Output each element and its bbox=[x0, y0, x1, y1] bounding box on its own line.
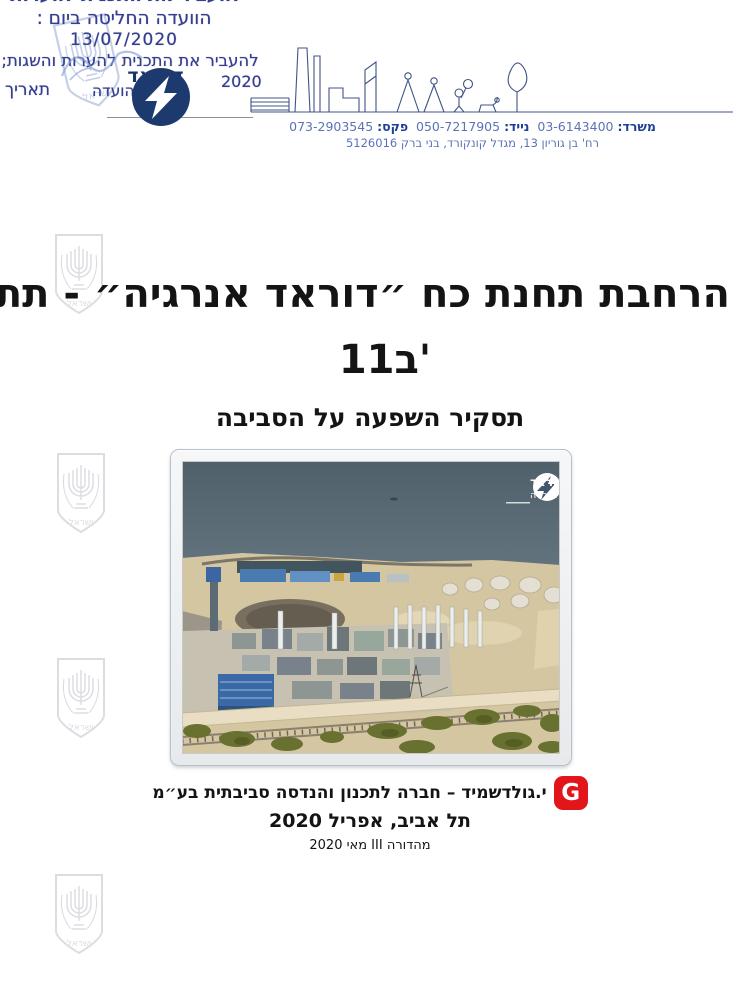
israel-emblem-watermark bbox=[47, 868, 111, 968]
israel-emblem-watermark bbox=[49, 652, 113, 752]
fax-number: 073-2903545 bbox=[289, 119, 373, 134]
israel-emblem-watermark bbox=[49, 447, 113, 547]
office-number: 03-6143400 bbox=[537, 119, 613, 134]
fax-label: פקס: bbox=[377, 119, 408, 134]
main-title-line1: הרחבת תחנת כח ״דוראד אנרגיה״ - תת״ל bbox=[40, 271, 730, 317]
company-name: י.גולדשמיד – חברה לתכנון והנדסה סביבתית … bbox=[152, 783, 546, 803]
stamp-date-label: תאריך bbox=[5, 80, 50, 100]
mobile-label: נייד: bbox=[504, 119, 529, 134]
skyline-line-art bbox=[247, 40, 737, 116]
office-label: משרד: bbox=[617, 119, 655, 134]
stamp-cropped-line: להעביר את התכנית להערות והשגות; bbox=[10, 0, 242, 8]
photo-illustration: דוראד אנרגיה bbox=[182, 461, 560, 754]
dorad-logo: דוראד אנרגיה bbox=[130, 62, 250, 132]
mobile-number: 050-7217905 bbox=[416, 119, 500, 134]
city-date-line: תל אביב, אפריל 2020 bbox=[150, 810, 590, 832]
document-subtitle: תסקיר השפעה על הסביבה bbox=[35, 403, 705, 432]
stamp-decision-line: הוועדה החליטה ביום : bbox=[0, 8, 248, 29]
contact-phone-line: משרד: 03-6143400 נייד: 050-7217905 פקס: … bbox=[255, 119, 690, 134]
contact-address: רח' בן גוריון 13, מגדל קונקורד, בני ברק … bbox=[255, 136, 690, 150]
document-page: ישראל להעביר את התכנית להערות והשגות; הו… bbox=[0, 0, 740, 986]
edition-line: מהדורה III מאי 2020 bbox=[150, 838, 590, 853]
power-station-aerial-photo: דוראד אנרגיה bbox=[170, 449, 572, 766]
main-title-line2: 11ב' bbox=[40, 337, 730, 383]
photo-logo-name: דוראד bbox=[530, 475, 560, 489]
photo-logo-tagline: אנרגיה bbox=[530, 490, 558, 501]
goldshmid-logo-icon: G bbox=[554, 776, 588, 810]
dorad-lightning-icon bbox=[130, 66, 192, 128]
company-credit-row: G י.גולדשמיד – חברה לתכנון והנדסה סביבתי… bbox=[150, 776, 590, 810]
